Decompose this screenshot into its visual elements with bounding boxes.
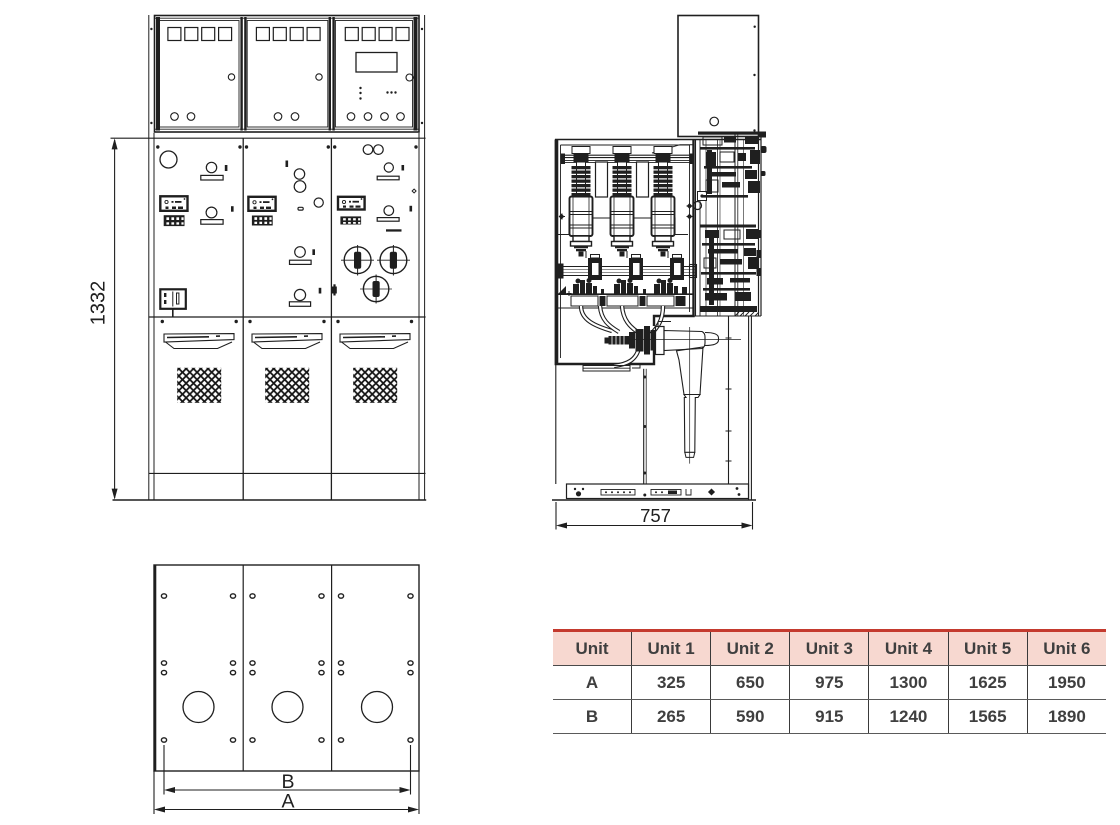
svg-text:1332: 1332	[88, 281, 110, 326]
svg-text:757: 757	[640, 505, 671, 526]
svg-text:A: A	[281, 791, 294, 813]
